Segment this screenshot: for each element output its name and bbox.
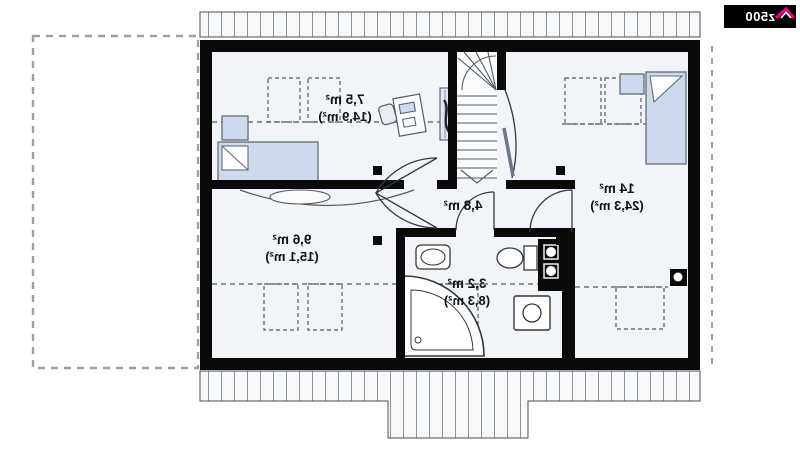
floor-plan-canvas: 7,5 m² (14,9 m²) 9,6 m² (15,1 m²) 4,8 m²… bbox=[0, 0, 800, 450]
room-area-total: (24,3 m²) bbox=[590, 197, 643, 214]
room-area: 3,2 m² bbox=[444, 275, 490, 293]
floor-plan-drawing bbox=[0, 0, 800, 450]
sink bbox=[416, 245, 450, 269]
label-bathroom: 3,2 m² (8,3 m²) bbox=[444, 275, 490, 309]
chimney-flue-block bbox=[538, 239, 564, 291]
garage-roof-outline bbox=[33, 36, 198, 368]
room-area-total: (14,9 m²) bbox=[318, 108, 371, 125]
nightstand-upper-left bbox=[222, 116, 248, 140]
nightstand-right bbox=[620, 74, 644, 94]
z500-logo-text: z500 bbox=[745, 9, 775, 24]
room-area-total: (8,3 m²) bbox=[444, 292, 490, 309]
label-bedroom-upper-left: 7,5 m² (14,9 m²) bbox=[318, 91, 371, 125]
label-bedroom-right: 14 m² (24,3 m²) bbox=[590, 180, 643, 214]
washing-machine bbox=[514, 296, 550, 330]
label-hall: 4,8 m² bbox=[443, 197, 482, 215]
roof-eave-bottom bbox=[200, 371, 700, 438]
label-bedroom-lower-left: 9,6 m² (15,1 m²) bbox=[265, 231, 318, 265]
toilet bbox=[497, 246, 537, 270]
room-area: 7,5 m² bbox=[318, 91, 371, 109]
z500-logo: z500 bbox=[724, 5, 796, 28]
bed-right bbox=[646, 72, 686, 164]
roof-eave-top bbox=[200, 12, 700, 37]
room-area: 9,6 m² bbox=[265, 231, 318, 249]
room-area-total: (15,1 m²) bbox=[265, 248, 318, 265]
bed-upper-left bbox=[218, 142, 318, 182]
staircase bbox=[457, 52, 497, 183]
room-area: 14 m² bbox=[590, 180, 643, 198]
room-area: 4,8 m² bbox=[443, 197, 482, 215]
flue-right-wall bbox=[670, 269, 687, 286]
z500-roof-icon bbox=[774, 5, 796, 21]
